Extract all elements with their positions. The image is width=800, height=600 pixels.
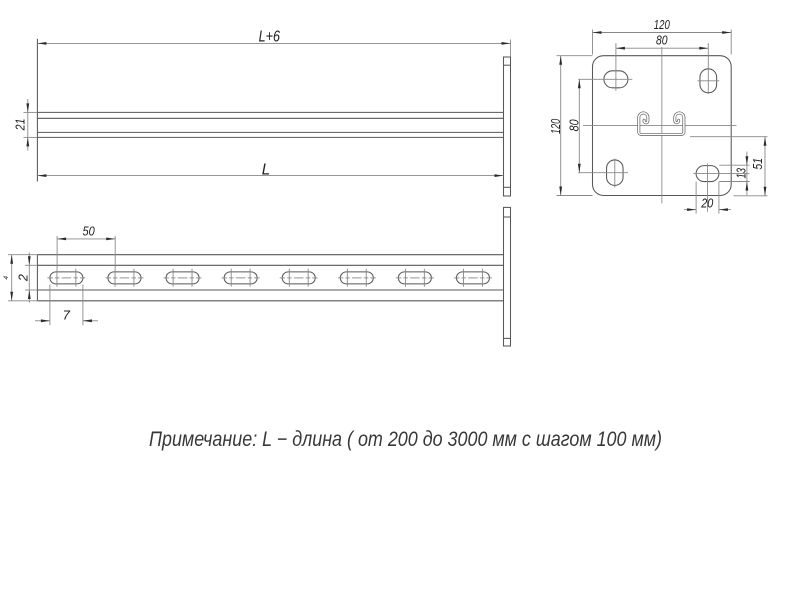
svg-text:L: L: [262, 162, 271, 179]
svg-text:80: 80: [656, 34, 668, 48]
svg-text:L+6: L+6: [259, 29, 281, 46]
svg-text:7: 7: [63, 308, 71, 323]
svg-text:120: 120: [654, 18, 670, 32]
svg-text:4: 4: [3, 276, 10, 280]
svg-text:13: 13: [734, 168, 748, 179]
svg-text:Примечание: L − длина ( от 200: Примечание: L − длина ( от 200 до 3000 м…: [149, 428, 662, 451]
svg-text:2: 2: [16, 274, 30, 282]
svg-text:21: 21: [14, 118, 28, 131]
svg-text:80: 80: [567, 119, 581, 131]
svg-text:120: 120: [549, 119, 563, 134]
svg-text:20: 20: [700, 197, 713, 211]
svg-text:51: 51: [751, 158, 765, 170]
svg-text:50: 50: [83, 224, 95, 238]
